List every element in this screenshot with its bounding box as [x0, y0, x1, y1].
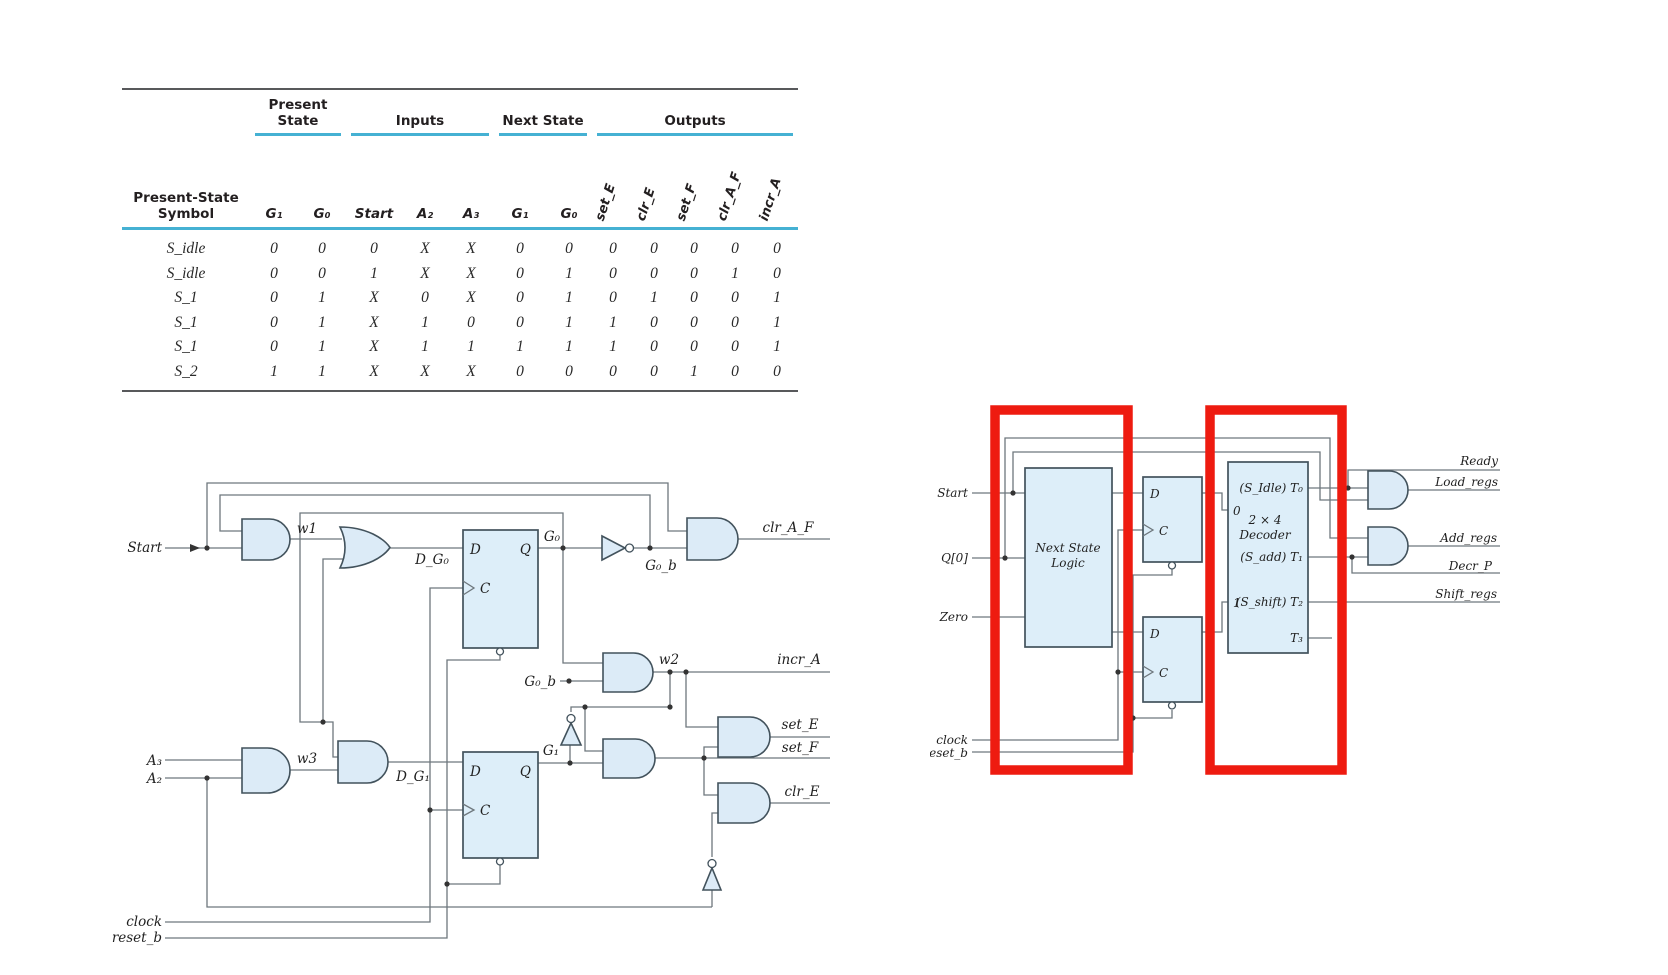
table-row: S_1 01 X0 X0 10 10 01 — [122, 286, 798, 311]
col-next-g0: G₀ — [546, 136, 592, 229]
group-present-state: Present State — [250, 89, 346, 136]
and-gate-add-regs — [1368, 527, 1408, 565]
col-symbol: Present-State Symbol — [122, 136, 250, 229]
clock-label: clock — [126, 914, 162, 930]
g1-label: G₁ — [543, 743, 559, 759]
group-next-state: Next State — [494, 89, 592, 136]
and-gate-dg1 — [338, 741, 388, 783]
decoder-t3-label: T₃ — [1290, 631, 1303, 645]
or-gate-dg0 — [340, 527, 390, 568]
decoder-in1-label: 1 — [1233, 596, 1241, 610]
table-column-header-row: Present-State Symbol G₁ G₀ Start A₂ A₃ G… — [122, 136, 798, 229]
and-gate-w2 — [603, 653, 653, 692]
state-symbol: S_idle — [122, 229, 250, 262]
state-symbol: S_1 — [122, 335, 250, 360]
dg0-label: D_G₀ — [414, 552, 449, 568]
start-label: Start — [127, 540, 162, 556]
w3-label: w3 — [297, 751, 317, 767]
g0b-label-2: G₀_b — [524, 674, 556, 690]
gate-level-circuit: D Q C D Q C Start w1 D_G₀ G₀ G₀_b clr_A_… — [95, 470, 840, 960]
table-row: S_1 01 X1 00 11 00 01 — [122, 311, 798, 336]
col-next-g1: G₁ — [494, 136, 546, 229]
reset-b-label: reset_b — [112, 930, 162, 946]
and-gate-set-f — [603, 739, 655, 778]
clr-e-label: clr_E — [785, 784, 820, 800]
col-start: Start — [346, 136, 402, 229]
col-incr-a: incr_A — [756, 136, 798, 229]
state-symbol: S_1 — [122, 286, 250, 311]
ff-d-label: D — [1149, 487, 1160, 501]
table-group-header-row: Present State Inputs Next State Outputs — [122, 89, 798, 136]
inverter-g1 — [561, 715, 581, 746]
a3-label: A₃ — [145, 753, 162, 769]
incr-a-label: incr_A — [777, 652, 821, 668]
table-row: S_idle 00 0X X0 00 00 00 — [122, 229, 798, 262]
reset-b-label: reset_b — [930, 746, 968, 760]
decoder-t2-label: (S_shift) T₂ — [1236, 595, 1303, 609]
set-e-label: set_E — [782, 717, 819, 733]
state-symbol: S_2 — [122, 360, 250, 392]
nsl-label-1: Next State — [1034, 541, 1100, 555]
a2-label: A₂ — [145, 771, 162, 787]
decoder-in0-label: 0 — [1233, 504, 1241, 518]
spacer — [122, 89, 250, 136]
ff-q-label: Q — [520, 542, 531, 558]
page: { "table": { "symbol_header": "Present-S… — [0, 0, 1668, 975]
state-symbol: S_1 — [122, 311, 250, 336]
zero-label: Zero — [939, 610, 968, 624]
q0-label: Q[0] — [941, 551, 968, 565]
col-g0: G₀ — [298, 136, 346, 229]
ready-label: Ready — [1459, 454, 1498, 468]
w1-label: w1 — [297, 521, 317, 537]
inverter-g0 — [602, 536, 634, 560]
state-table: Present State Inputs Next State Outputs … — [122, 88, 798, 392]
ff-q-label: Q — [520, 764, 531, 780]
d-flipflop-bottom: D C — [1143, 617, 1202, 709]
decoder-t1-label: (S_add) T₁ — [1240, 550, 1303, 564]
decoder-label-2: Decoder — [1238, 528, 1291, 542]
d-flipflop-top: D C — [1143, 477, 1202, 569]
col-a2: A₂ — [402, 136, 448, 229]
and-gate-w1 — [242, 519, 290, 560]
clock-label: clock — [936, 733, 968, 747]
decoder-block: (S_Idle) T₀ 2 × 4 Decoder (S_add) T₁ (S_… — [1228, 462, 1308, 653]
table-row: S_2 11 XX X0 00 01 00 — [122, 360, 798, 392]
clr-a-f-label: clr_A_F — [763, 520, 815, 536]
and-gate-clr-e — [718, 783, 770, 823]
and-gate-w3 — [242, 748, 290, 793]
col-g1: G₁ — [250, 136, 298, 229]
col-set-f: set_F — [674, 136, 714, 229]
decoder-t0-label: (S_Idle) T₀ — [1239, 481, 1303, 495]
set-f-label: set_F — [782, 740, 819, 756]
decoder-label-1: 2 × 4 — [1248, 513, 1282, 527]
decr-p-label: Decr_P — [1448, 559, 1493, 573]
d-flipflop-g0: D Q C — [463, 530, 538, 655]
ff-d-label: D — [469, 542, 481, 558]
load-regs-label: Load_regs — [1434, 475, 1498, 489]
w2-label: w2 — [659, 652, 679, 668]
junction-dots — [204, 545, 706, 886]
group-outputs: Outputs — [592, 89, 798, 136]
start-label: Start — [937, 486, 968, 500]
ff-d-label: D — [1149, 627, 1160, 641]
and-gate-load-regs — [1368, 471, 1408, 509]
ff-d-label: D — [469, 764, 481, 780]
next-state-logic-block: Next State Logic — [1025, 468, 1112, 647]
col-clr-e: clr_E — [634, 136, 674, 229]
ff-c-label: C — [1159, 524, 1168, 538]
arrowhead — [190, 544, 200, 552]
state-symbol: S_idle — [122, 262, 250, 287]
col-a3: A₃ — [448, 136, 494, 229]
ff-c-label: C — [1159, 666, 1168, 680]
block-diagram: Next State Logic D C D C (S_Idle) T₀ 2 ×… — [930, 405, 1515, 780]
g0-label: G₀ — [544, 529, 561, 545]
shift-regs-label: Shift_regs — [1435, 587, 1497, 601]
g0b-label: G₀_b — [645, 558, 677, 574]
dg1-label: D_G₁ — [395, 769, 430, 785]
inverter-a2 — [703, 860, 721, 891]
col-clr-a-f: clr_A_F — [714, 136, 756, 229]
ff-c-label: C — [480, 581, 491, 597]
nsl-label-2: Logic — [1050, 556, 1085, 570]
ff-c-label: C — [480, 803, 491, 819]
and-gate-set-e — [718, 717, 770, 757]
table-row: S_idle 00 1X X0 10 00 10 — [122, 262, 798, 287]
and-gate-clr-a-f — [687, 518, 738, 560]
d-flipflop-g1: D Q C — [463, 752, 538, 865]
col-set-e: set_E — [592, 136, 634, 229]
table-row: S_1 01 X1 11 11 00 01 — [122, 335, 798, 360]
group-inputs: Inputs — [346, 89, 494, 136]
add-regs-label: Add_regs — [1439, 531, 1497, 545]
